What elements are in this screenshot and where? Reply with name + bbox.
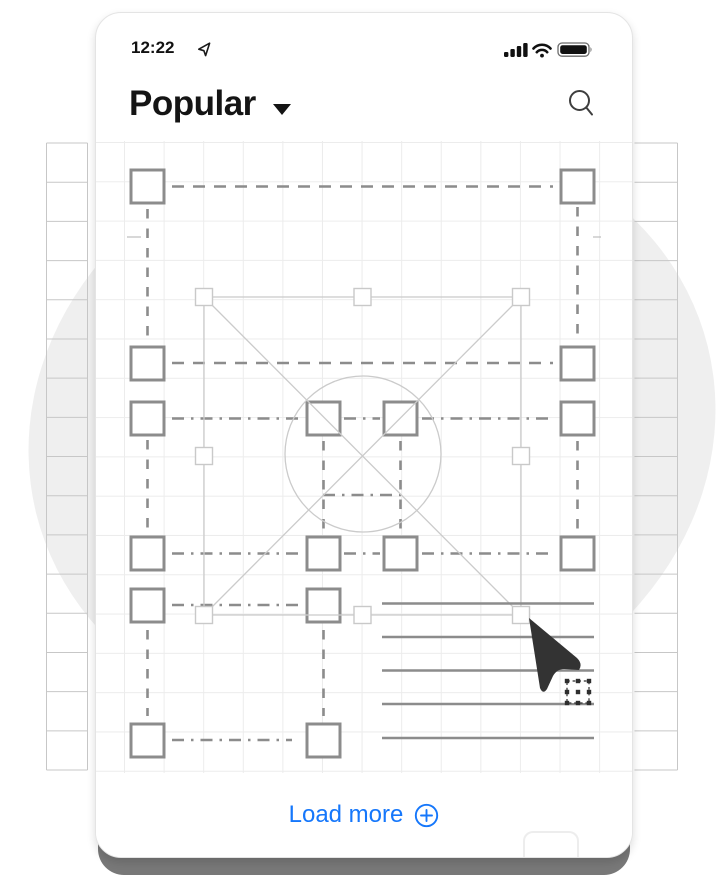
wireframe-circle [285,376,441,532]
load-more-button[interactable]: Load more [283,800,446,830]
signal-icon [504,43,528,57]
location-arrow-icon [196,41,212,57]
wireframe-illustration [96,141,633,773]
load-more-label: Load more [289,801,404,829]
battery-icon [558,43,592,56]
page-title[interactable]: Popular [129,84,256,124]
plus-circle-icon [414,803,439,828]
text-placeholder-lines [382,604,594,739]
status-time: 12:22 [131,38,174,58]
next-card-ghost-element [523,831,579,857]
status-icons [504,41,596,58]
wifi-icon [534,45,551,58]
search-icon [566,88,596,120]
dotted-selection-icon [565,679,591,705]
app-header: Popular [96,75,632,133]
status-bar: 12:22 [96,13,632,73]
phone-card: 12:22 Popular [95,12,633,858]
wireframe-canvas [96,141,633,773]
selection-box [204,297,521,615]
caret-down-icon[interactable] [273,104,291,115]
search-button[interactable] [566,88,596,120]
